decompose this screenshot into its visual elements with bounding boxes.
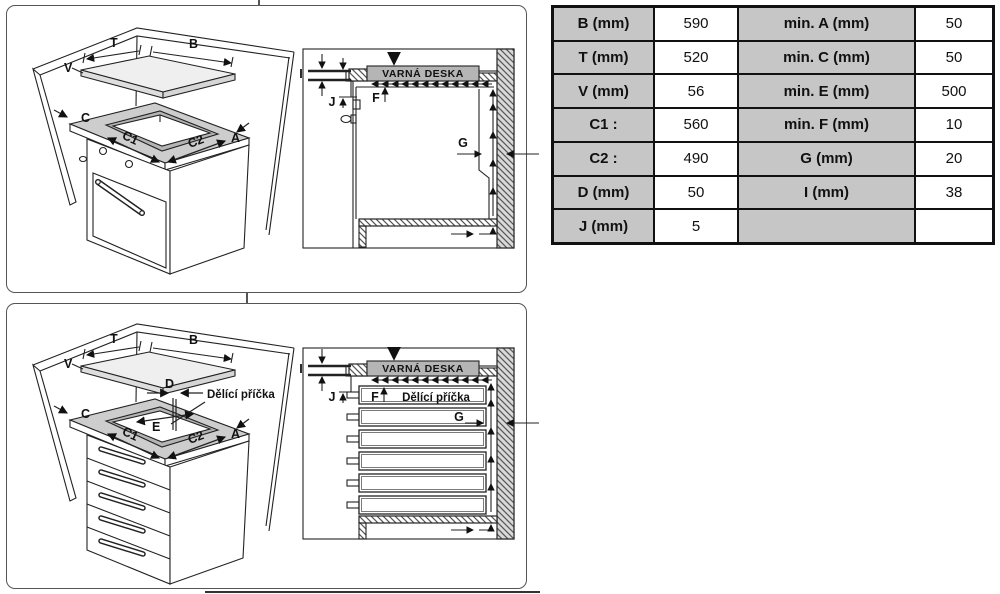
table-cell-value: 38 xyxy=(916,177,992,209)
dim-label-b: B xyxy=(189,333,198,347)
dim-label-g: G xyxy=(454,410,464,424)
dim-label-t: T xyxy=(110,332,118,346)
table-cell-label: min. E (mm) xyxy=(739,75,914,107)
table-cell-label: min. C (mm) xyxy=(739,42,914,74)
table-cell-value xyxy=(916,210,992,242)
dim-label-a: A xyxy=(231,427,240,441)
bottom-shelf-hatched xyxy=(359,516,497,523)
dim-label-i: I xyxy=(299,67,302,81)
table-cell-value: 50 xyxy=(655,177,737,209)
oven-handle-hook-icon xyxy=(341,116,351,123)
table-cell-label: J (mm) xyxy=(554,210,653,242)
cooktop-label: VARNÁ DESKA xyxy=(382,362,464,375)
table-cell-label: min. A (mm) xyxy=(739,8,914,40)
table-cell-value: 10 xyxy=(916,109,992,141)
bottom-shelf-hatched xyxy=(359,219,497,226)
dim-label-j: J xyxy=(329,95,336,109)
dim-label-b: B xyxy=(189,37,198,51)
cross-section-drawers-drawing: VARNÁ DESKA I J F Dělící příčka G xyxy=(293,342,543,554)
table-cell-value: 50 xyxy=(916,42,992,74)
table-cell-value: 50 xyxy=(916,8,992,40)
table-cell-label xyxy=(739,210,914,242)
dim-label-i: I xyxy=(299,362,302,376)
dim-label-a: A xyxy=(231,131,240,145)
table-cell-value: 56 xyxy=(655,75,737,107)
table-cell-label: V (mm) xyxy=(554,75,653,107)
isometric-drawer-cabinet-drawing: V T B C A C1 C2 D E Dělící příčka xyxy=(13,308,299,588)
dim-label-c: C xyxy=(81,111,90,125)
dimensions-table: B (mm) 590 min. A (mm) 50 T (mm) 520 min… xyxy=(551,5,995,245)
table-cell-label: T (mm) xyxy=(554,42,653,74)
table-cell-label: min. F (mm) xyxy=(739,109,914,141)
table-cell-label: C2 : xyxy=(554,143,653,175)
panel-connector-line xyxy=(258,0,260,6)
oven-latch-icon xyxy=(80,157,87,162)
cross-section-oven-drawing: VARNÁ DESKA I J F G xyxy=(293,46,543,256)
dim-label-v: V xyxy=(64,357,73,371)
partition-label: Dělící příčka xyxy=(402,392,470,404)
table-cell-value: 490 xyxy=(655,143,737,175)
table-cell-label: G (mm) xyxy=(739,143,914,175)
page-bottom-rule xyxy=(205,591,540,593)
oven-knob-icon xyxy=(126,161,133,168)
table-cell-label: I (mm) xyxy=(739,177,914,209)
table-cell-value: 5 xyxy=(655,210,737,242)
dim-label-f: F xyxy=(372,91,380,105)
cooktop-label: VARNÁ DESKA xyxy=(382,67,464,80)
dim-label-f: F xyxy=(371,390,379,404)
dim-label-j: J xyxy=(329,390,336,404)
table-cell-value: 560 xyxy=(655,109,737,141)
cooktop-slab xyxy=(72,341,235,394)
diagram-panel-oven: V T B C A C1 C2 xyxy=(6,5,527,293)
partition-label: Dělící příčka xyxy=(207,389,275,401)
dim-label-e: E xyxy=(152,420,160,434)
counter-and-cabinet xyxy=(70,103,249,274)
panel-connector-line xyxy=(246,293,248,303)
table-cell-value: 500 xyxy=(916,75,992,107)
table-cell-label: B (mm) xyxy=(554,8,653,40)
dim-label-c: C xyxy=(81,407,90,421)
table-cell-value: 520 xyxy=(655,42,737,74)
isometric-oven-cabinet-drawing: V T B C A C1 C2 xyxy=(13,12,299,288)
dim-label-v: V xyxy=(64,61,73,75)
table-cell-value: 20 xyxy=(916,143,992,175)
table-cell-label: D (mm) xyxy=(554,177,653,209)
dim-label-g: G xyxy=(458,136,468,150)
cooktop-slab xyxy=(72,45,235,98)
oven-knob-icon xyxy=(100,148,107,155)
dim-label-t: T xyxy=(110,36,118,50)
table-cell-value: 590 xyxy=(655,8,737,40)
diagram-panel-drawers: V T B C A C1 C2 D E Dělící příčka xyxy=(6,303,527,589)
dim-label-d: D xyxy=(165,377,174,391)
table-cell-label: C1 : xyxy=(554,109,653,141)
installation-manual-page: { "table": { "rows": [ ["B (mm)", "590",… xyxy=(0,0,1000,594)
